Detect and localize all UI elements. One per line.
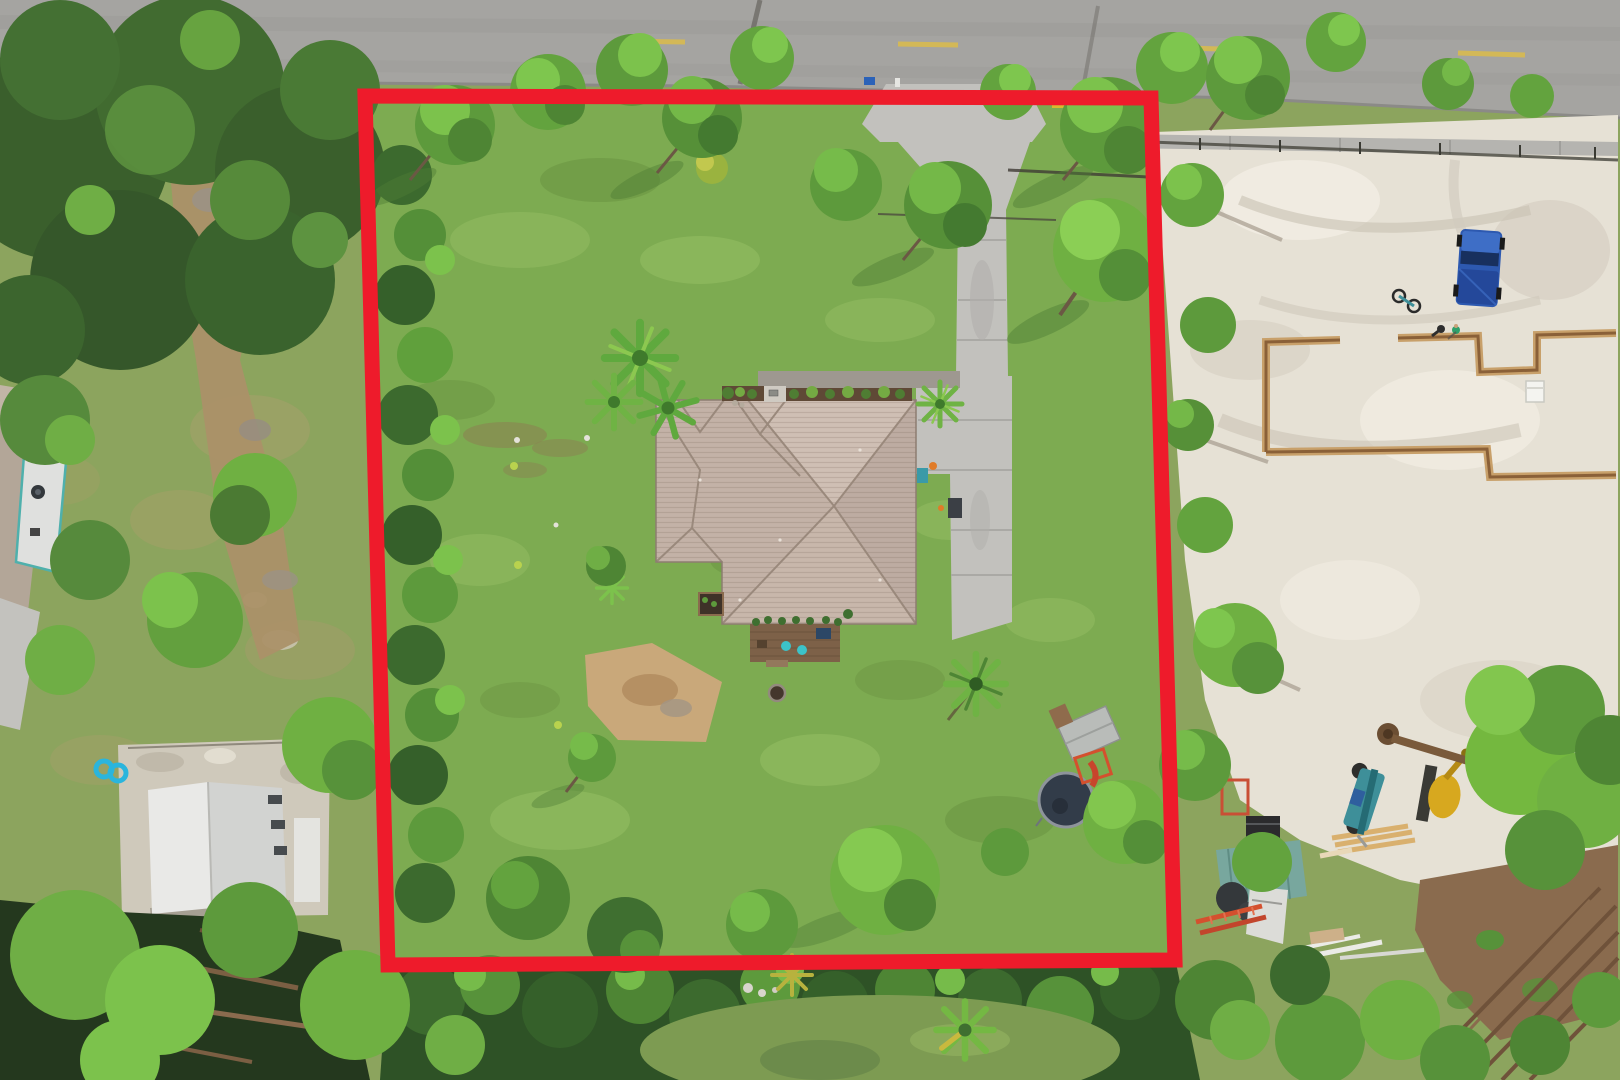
shed-side-panel [294, 818, 320, 902]
grill [948, 498, 962, 518]
deck-steps [766, 660, 788, 667]
worn-grass [503, 462, 547, 478]
patio-chair [797, 645, 807, 655]
post [895, 78, 900, 87]
worn-grass [532, 439, 588, 457]
aerial-photo: Aerial drone photo of a residential prop… [0, 0, 1620, 1080]
tarp [1246, 886, 1288, 944]
driveway-stain [970, 260, 994, 340]
trash-bin [917, 468, 928, 483]
entry-sign [769, 390, 778, 396]
driveway-stain [970, 490, 990, 550]
patio-table [816, 628, 831, 639]
porta-potty [1526, 381, 1544, 402]
fire-pit [769, 685, 785, 701]
shed-roof-left [148, 782, 212, 914]
pickup-truck [1452, 228, 1505, 307]
mailbox [864, 77, 875, 85]
sand-light [1360, 370, 1540, 470]
worn-grass [463, 422, 547, 448]
patio-chair [781, 641, 791, 651]
orange-item [938, 505, 944, 511]
sand-light [1280, 560, 1420, 640]
shrub [586, 546, 610, 570]
paver-walk [758, 371, 960, 388]
orange-item [929, 462, 937, 470]
clearing-palm [936, 1001, 993, 1058]
deck-item [757, 640, 767, 648]
